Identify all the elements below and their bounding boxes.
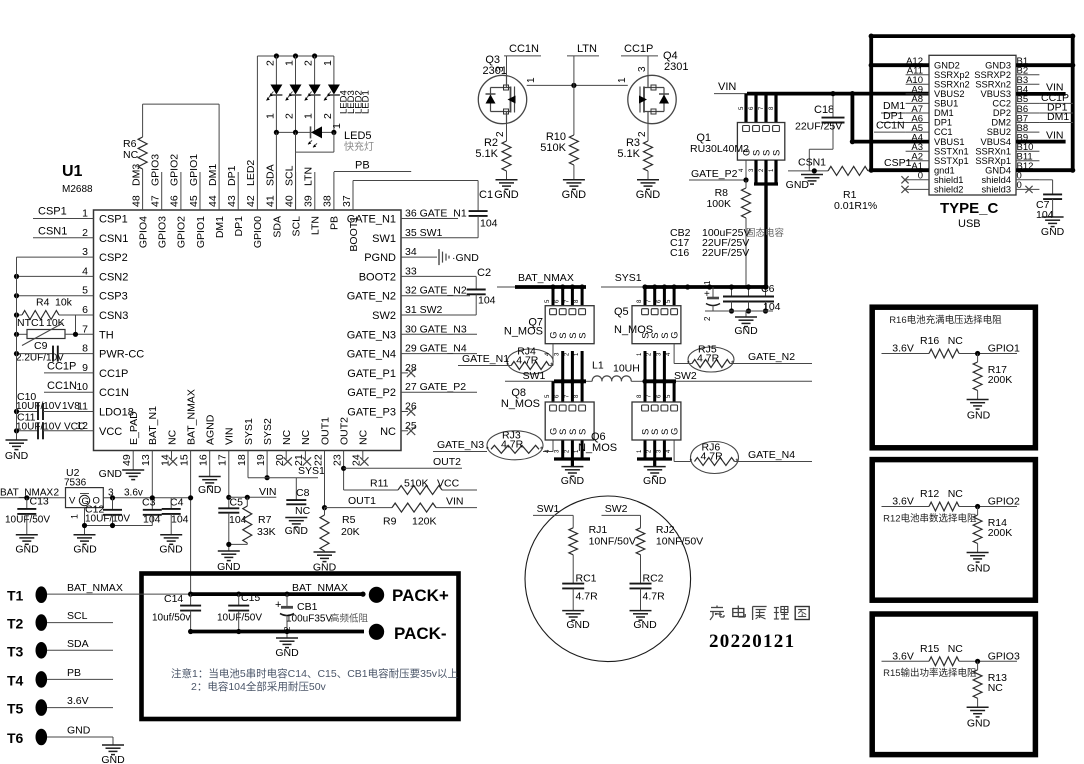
svg-text:8: 8 (82, 343, 88, 355)
svg-text:OUT2: OUT2 (338, 417, 350, 445)
svg-text:100K: 100K (706, 198, 731, 210)
svg-text:GND: GND (101, 754, 125, 764)
svg-text:DM1: DM1 (214, 216, 226, 238)
svg-text:CSN2: CSN2 (99, 271, 128, 283)
svg-text:BAT_N1: BAT_N1 (147, 406, 159, 445)
svg-text:C2: C2 (477, 267, 491, 279)
svg-text:T4: T4 (7, 672, 24, 688)
svg-text:39: 39 (303, 195, 315, 207)
svg-text:SSTXn1: SSTXn1 (934, 146, 969, 156)
svg-text:5: 5 (82, 285, 88, 297)
svg-text:GND: GND (967, 410, 991, 422)
svg-text:SDA: SDA (264, 164, 276, 186)
svg-text:*: * (550, 363, 553, 370)
svg-text:SCL: SCL (67, 610, 88, 622)
svg-text:CSP3: CSP3 (99, 291, 128, 303)
svg-text:C9: C9 (34, 340, 48, 352)
svg-text:SYS1: SYS1 (243, 418, 255, 445)
svg-text:CSP1: CSP1 (99, 214, 128, 226)
svg-text:GATE_N2: GATE_N2 (748, 351, 795, 363)
svg-text:+: + (275, 599, 281, 611)
svg-text:VBUS2: VBUS2 (934, 89, 965, 99)
svg-text:PGND: PGND (364, 252, 396, 264)
svg-text:Q5: Q5 (614, 306, 629, 318)
svg-text:27 GATE_P2: 27 GATE_P2 (405, 381, 466, 393)
svg-text:R15输出功率选择电阻: R15输出功率选择电阻 (883, 667, 977, 679)
svg-text:*: * (731, 361, 734, 368)
svg-text:PACK+: PACK+ (392, 586, 449, 605)
svg-text:CSP1: CSP1 (38, 206, 67, 218)
svg-text:N_MOS: N_MOS (501, 398, 540, 410)
svg-text:NC: NC (948, 335, 964, 347)
svg-text:104: 104 (171, 514, 189, 526)
svg-text:LTN: LTN (303, 167, 315, 186)
svg-text:10UF/50V: 10UF/50V (217, 613, 262, 624)
svg-text:DM2: DM2 (991, 118, 1011, 128)
svg-text:CSN3: CSN3 (99, 310, 128, 322)
svg-text:GND: GND (633, 619, 657, 631)
svg-text:GATE_N2: GATE_N2 (347, 291, 396, 303)
svg-text:SYS1: SYS1 (615, 272, 642, 284)
svg-text:PB: PB (67, 667, 81, 679)
svg-text:R16: R16 (920, 335, 939, 347)
svg-text:CSP2: CSP2 (99, 252, 128, 264)
svg-text:DM1: DM1 (1047, 111, 1069, 123)
svg-text:2: 2 (703, 316, 712, 321)
svg-text:LTN: LTN (577, 43, 597, 55)
svg-text:LTN: LTN (310, 216, 322, 235)
svg-text:NC: NC (948, 643, 964, 655)
svg-text:33K: 33K (257, 526, 276, 538)
svg-text:C8: C8 (296, 487, 310, 499)
svg-text:C4: C4 (170, 497, 184, 509)
svg-text:36 GATE_N1: 36 GATE_N1 (405, 208, 467, 220)
svg-text:4: 4 (82, 265, 88, 277)
svg-text:GATE_P3: GATE_P3 (347, 407, 396, 419)
svg-text:BAT_NMAX: BAT_NMAX (67, 582, 123, 594)
svg-text:41: 41 (264, 195, 276, 207)
svg-text:510K: 510K (540, 142, 566, 154)
svg-text:OUT1: OUT1 (319, 417, 331, 445)
svg-text:PB: PB (355, 160, 370, 172)
svg-text:104: 104 (763, 301, 781, 313)
svg-text:22UF/25V: 22UF/25V (702, 247, 749, 259)
svg-text:22UF/25V: 22UF/25V (795, 121, 842, 133)
svg-text:DP1: DP1 (226, 165, 238, 186)
svg-text:NC: NC (295, 505, 311, 517)
svg-text:G: G (670, 331, 681, 338)
svg-text:37: 37 (341, 195, 353, 207)
svg-text:45: 45 (188, 195, 200, 207)
svg-text:GPIO2: GPIO2 (176, 216, 188, 248)
svg-text:NC: NC (380, 426, 396, 438)
svg-text:3: 3 (495, 66, 506, 72)
svg-text:0.01R1%: 0.01R1% (834, 200, 877, 212)
svg-text:4.7R: 4.7R (697, 353, 720, 365)
svg-text:VIN: VIN (718, 81, 736, 93)
svg-text:20220121: 20220121 (709, 631, 795, 652)
svg-text:31 SW2: 31 SW2 (405, 304, 443, 316)
svg-text:33: 33 (405, 265, 417, 277)
svg-text:NC: NC (166, 429, 178, 445)
svg-text:GND4: GND4 (985, 165, 1011, 175)
svg-text:gnd1: gnd1 (934, 165, 955, 175)
svg-text:C14: C14 (164, 593, 183, 605)
svg-text:SYS2: SYS2 (262, 418, 274, 445)
svg-text:34: 34 (405, 246, 417, 258)
svg-text:CSN1: CSN1 (38, 225, 67, 237)
svg-text:CC1N: CC1N (47, 380, 77, 392)
svg-text:N_MOS: N_MOS (578, 442, 617, 454)
svg-text:SW2: SW2 (674, 370, 697, 382)
svg-text:48: 48 (130, 195, 142, 207)
svg-text:SW1: SW1 (372, 233, 396, 245)
svg-text:VBUS1: VBUS1 (934, 137, 965, 147)
svg-text:CC2: CC2 (992, 99, 1011, 109)
svg-text:43: 43 (226, 195, 238, 207)
svg-text:2: 2 (82, 227, 88, 239)
svg-text:200K: 200K (988, 527, 1013, 539)
svg-text:29 GATE_N4: 29 GATE_N4 (405, 343, 467, 355)
svg-text:NC: NC (123, 149, 139, 161)
svg-text:6: 6 (82, 304, 88, 316)
svg-text:RJ2: RJ2 (656, 524, 675, 536)
svg-text:120K: 120K (412, 516, 437, 528)
svg-text:1: 1 (284, 60, 296, 66)
svg-text:GND: GND (967, 717, 991, 729)
svg-text:SSRXp2: SSRXp2 (934, 70, 970, 80)
svg-text:SSRXp1: SSRXp1 (975, 156, 1011, 166)
svg-text:17: 17 (217, 454, 229, 466)
svg-text:10: 10 (76, 381, 88, 393)
svg-text:CC1N: CC1N (876, 120, 905, 132)
svg-text:10k: 10k (55, 297, 73, 309)
svg-text:C3: C3 (142, 497, 156, 509)
svg-text:10UH: 10UH (613, 363, 640, 375)
svg-text:GPIO1: GPIO1 (988, 343, 1020, 355)
svg-text:SBU1: SBU1 (934, 99, 958, 109)
svg-text:TYPE_C: TYPE_C (940, 200, 999, 217)
svg-text:GND: GND (734, 325, 758, 337)
svg-text:32 GATE_N2: 32 GATE_N2 (405, 285, 467, 297)
svg-text:CSN1: CSN1 (798, 157, 826, 169)
svg-text:固态电容: 固态电容 (746, 227, 785, 239)
svg-text:BOOT1: BOOT1 (348, 216, 360, 252)
svg-text:9: 9 (82, 362, 88, 374)
svg-text:E_PAD: E_PAD (128, 411, 140, 445)
svg-text:LED5: LED5 (344, 130, 372, 142)
svg-text:10NF/50V: 10NF/50V (656, 536, 703, 548)
svg-text:GND: GND (15, 544, 39, 556)
svg-text:C18: C18 (814, 104, 834, 116)
svg-text:*: * (736, 459, 739, 466)
svg-text:1: 1 (322, 60, 334, 66)
svg-text:5.1K: 5.1K (617, 148, 640, 160)
svg-text:SYS1: SYS1 (298, 465, 325, 477)
svg-text:18: 18 (236, 454, 248, 466)
svg-text:DP2: DP2 (993, 108, 1011, 118)
svg-text:SSTXp1: SSTXp1 (934, 156, 969, 166)
svg-text:DP1: DP1 (934, 118, 952, 128)
svg-text:4.7R: 4.7R (516, 355, 539, 367)
svg-text:1V8: 1V8 (62, 401, 80, 412)
svg-text:19: 19 (255, 454, 267, 466)
svg-text:SBU2: SBU2 (987, 127, 1011, 137)
svg-text:49: 49 (121, 454, 133, 466)
svg-text:RU30L40M2: RU30L40M2 (690, 143, 749, 155)
svg-text:R7: R7 (258, 514, 272, 526)
svg-text:T2: T2 (7, 616, 24, 632)
svg-text:VBUS4: VBUS4 (981, 137, 1012, 147)
svg-text:C5: C5 (230, 497, 244, 509)
svg-text:GND: GND (967, 563, 991, 575)
svg-text:GND: GND (643, 475, 667, 487)
svg-text:S: S (578, 332, 589, 338)
svg-text:VBUS3: VBUS3 (981, 89, 1012, 99)
svg-text:VIN: VIN (446, 496, 464, 508)
svg-text:GATE_N4: GATE_N4 (347, 349, 396, 361)
svg-text:M2688: M2688 (62, 184, 93, 195)
svg-text:R12电池串数选择电阻: R12电池串数选择电阻 (883, 512, 977, 524)
svg-text:GATE_N1: GATE_N1 (462, 353, 509, 365)
svg-text:RC2: RC2 (643, 573, 664, 585)
svg-text:4.7R: 4.7R (501, 438, 524, 450)
svg-text:shield4: shield4 (982, 175, 1011, 185)
svg-text:USB: USB (958, 218, 981, 230)
svg-text:GND: GND (275, 647, 299, 659)
svg-text:NC: NC (358, 429, 370, 445)
svg-text:GPIO2: GPIO2 (169, 154, 181, 186)
svg-text:GND: GND (159, 544, 183, 556)
svg-text:44: 44 (207, 195, 219, 207)
svg-text:T6: T6 (7, 730, 24, 746)
svg-text:GND: GND (561, 475, 585, 487)
svg-text:GATE_N4: GATE_N4 (748, 449, 795, 461)
svg-text:DP1: DP1 (233, 216, 245, 237)
svg-text:GND: GND (562, 189, 587, 201)
svg-text:CC1P: CC1P (99, 368, 128, 380)
svg-text:1: 1 (617, 77, 628, 83)
svg-text:SDA: SDA (67, 638, 89, 650)
svg-text:30 GATE_N3: 30 GATE_N3 (405, 323, 467, 335)
svg-text:GND: GND (1041, 226, 1065, 238)
svg-text:CC1P: CC1P (47, 361, 76, 373)
svg-text:104: 104 (1036, 209, 1054, 221)
svg-text:SW1: SW1 (537, 503, 560, 515)
svg-text:VCC: VCC (437, 478, 460, 490)
svg-text:R9: R9 (383, 516, 397, 528)
svg-text:GPIO3: GPIO3 (988, 651, 1020, 663)
svg-text:*: * (687, 361, 690, 368)
svg-text:N_MOS: N_MOS (504, 326, 543, 338)
svg-text:RJ1: RJ1 (589, 524, 608, 536)
svg-text:510K: 510K (404, 478, 429, 490)
svg-text:GATE_P1: GATE_P1 (347, 368, 396, 380)
svg-text:5.1K: 5.1K (475, 148, 498, 160)
svg-text:PACK-: PACK- (394, 624, 447, 643)
svg-text:SSRXn1: SSRXn1 (975, 146, 1011, 156)
svg-text:S: S (578, 429, 589, 435)
svg-text:C13: C13 (30, 496, 49, 508)
svg-text:NC: NC (281, 429, 293, 445)
svg-text:DM1: DM1 (207, 164, 219, 186)
svg-text:BAT_NMAX: BAT_NMAX (185, 389, 197, 445)
svg-text:GND: GND (566, 619, 590, 631)
svg-text:GATE_P2: GATE_P2 (691, 168, 738, 180)
svg-text:2：电容104全部采用耐压50v: 2：电容104全部采用耐压50v (191, 680, 327, 693)
svg-text:G: G (670, 428, 681, 435)
svg-text:*: * (540, 446, 543, 453)
svg-text:13: 13 (140, 454, 152, 466)
svg-text:N_MOS: N_MOS (614, 324, 653, 336)
svg-text:R16电池充满电压选择电阻: R16电池充满电压选择电阻 (889, 314, 1002, 326)
svg-text:GPIO0: GPIO0 (252, 216, 264, 248)
svg-text:SCL: SCL (283, 165, 295, 186)
svg-text:OUT2: OUT2 (433, 456, 461, 468)
svg-text:GND: GND (73, 544, 97, 556)
svg-text:CC1P: CC1P (624, 43, 653, 55)
svg-text:1: 1 (331, 123, 343, 129)
svg-text:104: 104 (478, 295, 496, 307)
svg-text:快充灯: 快充灯 (344, 140, 374, 153)
svg-text:CC1: CC1 (934, 127, 953, 137)
svg-text:NC: NC (300, 429, 312, 445)
svg-text:CC1N: CC1N (509, 43, 539, 55)
svg-text:GND: GND (67, 725, 91, 737)
svg-text:R11: R11 (370, 478, 389, 490)
svg-text:高频低阻: 高频低阻 (330, 613, 369, 625)
svg-text:LED1: LED1 (361, 90, 372, 114)
svg-text:shield3: shield3 (982, 185, 1011, 195)
svg-text:10UF/50V: 10UF/50V (5, 515, 50, 526)
svg-text:GND3: GND3 (985, 60, 1011, 70)
svg-text:*: * (506, 363, 509, 370)
svg-text:R12: R12 (920, 488, 939, 500)
svg-text:GATE_N3: GATE_N3 (347, 329, 396, 341)
svg-text:shield2: shield2 (934, 185, 963, 195)
svg-text:3.6V: 3.6V (892, 496, 914, 508)
svg-text:10uf/50v: 10uf/50v (152, 613, 190, 624)
svg-text:2: 2 (284, 113, 296, 119)
svg-text:2301: 2301 (664, 61, 688, 73)
svg-text:42: 42 (245, 195, 257, 207)
svg-text:SDA: SDA (271, 216, 283, 238)
svg-text:104: 104 (480, 218, 498, 230)
svg-text:2: 2 (303, 60, 315, 66)
svg-text:1: 1 (703, 280, 712, 285)
svg-text:2: 2 (54, 487, 60, 498)
svg-text:23: 23 (331, 454, 343, 466)
svg-text:SSRXP2: SSRXP2 (974, 70, 1011, 80)
svg-text:GND: GND (99, 468, 123, 480)
svg-text:shield1: shield1 (934, 175, 963, 185)
svg-text:CB1: CB1 (297, 601, 318, 613)
svg-text:GPIO3: GPIO3 (157, 216, 169, 248)
svg-text:AGND: AGND (205, 414, 217, 445)
svg-text:T1: T1 (7, 588, 24, 604)
svg-text:3.6V: 3.6V (892, 343, 914, 355)
svg-text:3.6v: 3.6v (124, 487, 143, 498)
svg-text:VCC: VCC (99, 426, 122, 438)
svg-text:LED2: LED2 (245, 160, 257, 186)
svg-text:C15: C15 (241, 592, 260, 604)
svg-text:GND: GND (494, 189, 519, 201)
svg-text:TH: TH (99, 329, 114, 341)
svg-text:38: 38 (322, 195, 334, 207)
svg-text:GND: GND (636, 189, 661, 201)
svg-text:C16: C16 (670, 247, 689, 259)
svg-text:40: 40 (283, 195, 295, 207)
svg-text:4.7R: 4.7R (576, 591, 599, 603)
svg-text:T3: T3 (7, 643, 24, 659)
svg-text:100uF35V: 100uF35V (286, 614, 332, 625)
svg-text:NTC1: NTC1 (17, 317, 45, 329)
svg-text:1: 1 (526, 77, 537, 83)
svg-text:*: * (486, 446, 489, 453)
svg-text:DM1: DM1 (934, 108, 954, 118)
svg-text:1: 1 (264, 113, 276, 119)
svg-text:GATE_N3: GATE_N3 (437, 439, 484, 451)
svg-text:GND: GND (198, 484, 222, 496)
svg-text:VIN: VIN (224, 427, 236, 445)
svg-text:CC1N: CC1N (99, 387, 129, 399)
svg-text:DM3: DM3 (130, 164, 142, 186)
svg-text:S: S (772, 150, 783, 156)
svg-text:PB: PB (329, 216, 341, 230)
svg-text:VIN: VIN (1046, 130, 1064, 142)
svg-text:GND: GND (786, 179, 810, 191)
svg-text:V: V (69, 496, 76, 507)
svg-text:1: 1 (82, 208, 88, 220)
svg-text:7536: 7536 (64, 478, 87, 489)
svg-text:GPIO2: GPIO2 (988, 496, 1020, 508)
svg-text:·GND: ·GND (452, 252, 479, 264)
svg-text:1: 1 (70, 514, 80, 519)
svg-text:4.7R: 4.7R (701, 451, 724, 463)
svg-text:GPIO4: GPIO4 (137, 216, 149, 248)
svg-text:PWR-CC: PWR-CC (99, 349, 144, 361)
svg-text:3: 3 (82, 246, 88, 258)
svg-text:注意1：当电池5串时电容C14、C15、CB1电容耐压要35: 注意1：当电池5串时电容C14、C15、CB1电容耐压要35v以上 (171, 667, 458, 680)
svg-text:BAT_NMAX: BAT_NMAX (518, 272, 574, 284)
svg-text:R5: R5 (342, 514, 356, 526)
svg-text:GATE_P2: GATE_P2 (347, 387, 396, 399)
svg-text:NC: NC (948, 488, 964, 500)
svg-text:3: 3 (637, 66, 648, 72)
svg-text:2: 2 (322, 113, 334, 119)
svg-text:3.6V: 3.6V (892, 651, 914, 663)
svg-text:16: 16 (198, 454, 210, 466)
svg-text:2: 2 (264, 60, 276, 66)
svg-text:C1: C1 (479, 189, 493, 201)
svg-text:3.6V: 3.6V (67, 695, 89, 707)
svg-text:200K: 200K (988, 374, 1013, 386)
svg-text:GPIO1: GPIO1 (195, 216, 207, 248)
svg-text:GND: GND (285, 525, 309, 537)
svg-text:*: * (690, 459, 693, 466)
svg-text:GND: GND (5, 450, 29, 462)
svg-text:CSP1: CSP1 (884, 157, 912, 169)
svg-text:SCL: SCL (290, 216, 302, 237)
svg-text:RC1: RC1 (576, 573, 597, 585)
svg-text:C6: C6 (761, 283, 775, 295)
svg-text:SSRXn2: SSRXn2 (934, 80, 970, 90)
svg-text:OUT1: OUT1 (348, 495, 376, 507)
svg-text:R4: R4 (36, 297, 50, 309)
svg-text:7: 7 (82, 323, 88, 335)
svg-text:U1: U1 (62, 163, 83, 180)
svg-text:GPIO1: GPIO1 (188, 154, 200, 186)
